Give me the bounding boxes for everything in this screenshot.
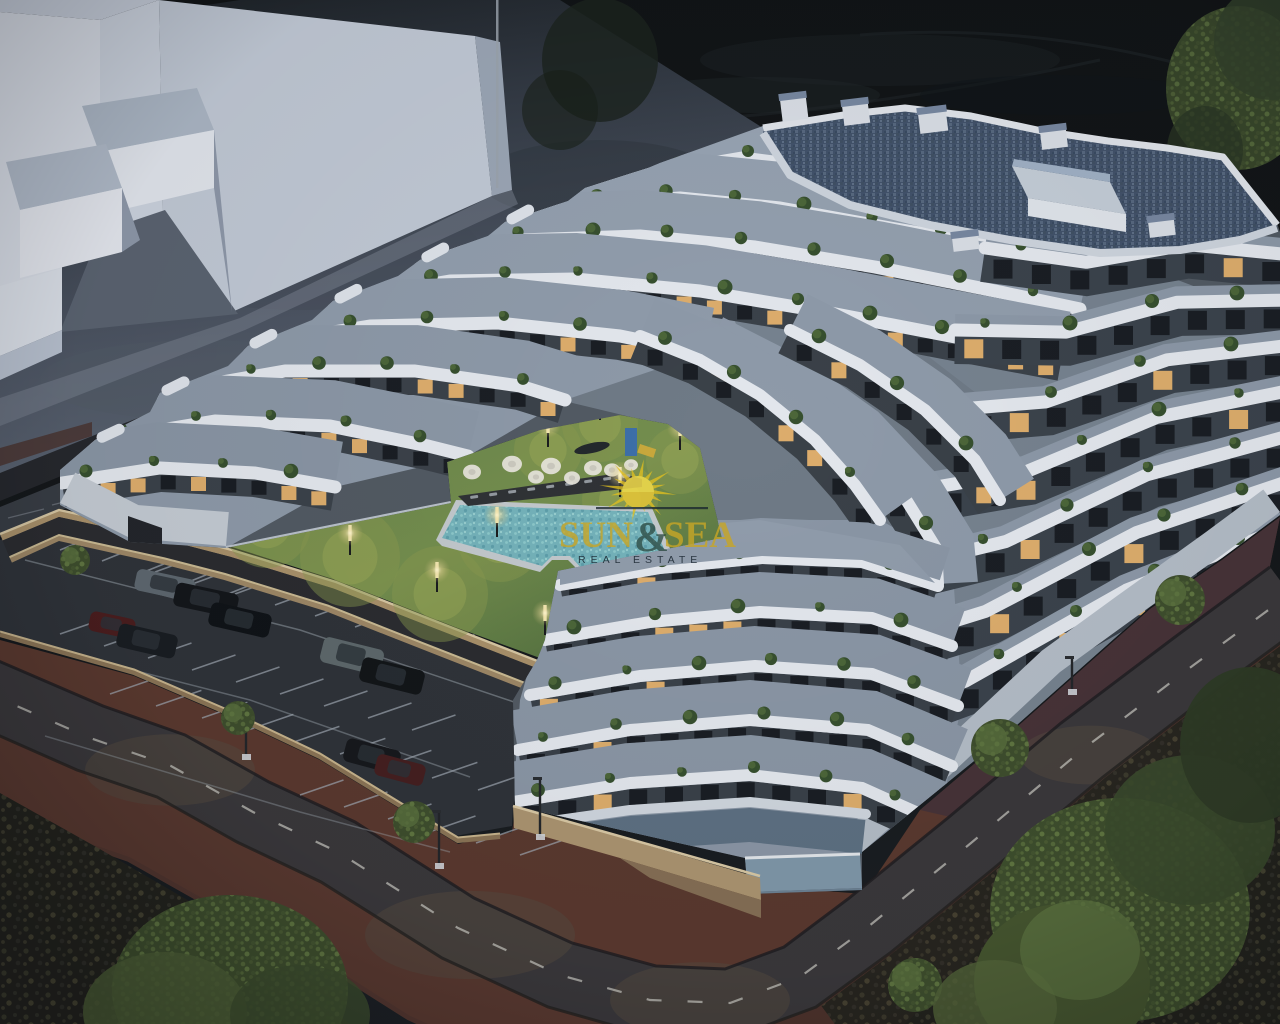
svg-text:SUN: SUN bbox=[559, 515, 633, 556]
svg-text:SEA: SEA bbox=[664, 515, 736, 556]
svg-text:REAL ESTATE: REAL ESTATE bbox=[578, 554, 702, 566]
